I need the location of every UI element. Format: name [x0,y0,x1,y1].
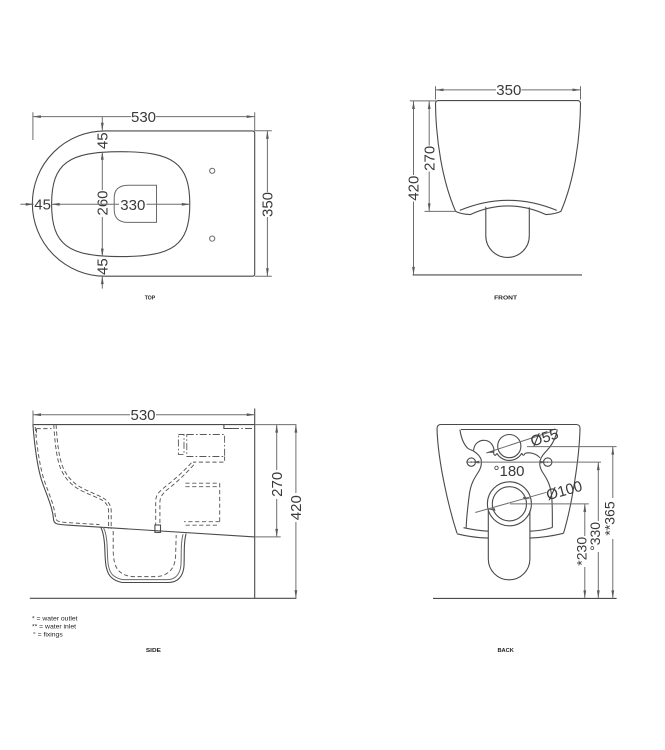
svg-text:SIDE: SIDE [146,648,161,654]
svg-text:350: 350 [496,82,521,99]
svg-text:270: 270 [421,146,438,171]
svg-text:* = water outlet: * = water outlet [32,615,78,622]
svg-text:BACK: BACK [497,648,514,654]
svg-text:45: 45 [95,132,112,149]
svg-text:°180: °180 [493,463,524,480]
svg-text:**365: **365 [602,501,618,535]
svg-text:45: 45 [95,258,112,275]
svg-text:** = water inlet: ** = water inlet [32,624,76,631]
svg-text:FRONT: FRONT [494,296,518,302]
svg-text:° = fixings: ° = fixings [33,631,63,639]
svg-text:330: 330 [120,197,145,214]
svg-text:TOP: TOP [145,296,156,302]
svg-text:270: 270 [269,472,286,497]
svg-text:420: 420 [288,495,305,520]
svg-text:45: 45 [34,197,51,214]
svg-text:530: 530 [130,407,155,424]
svg-text:530: 530 [131,109,156,126]
svg-text:420: 420 [406,176,423,201]
svg-text:260: 260 [95,190,112,215]
svg-text:350: 350 [260,192,277,217]
